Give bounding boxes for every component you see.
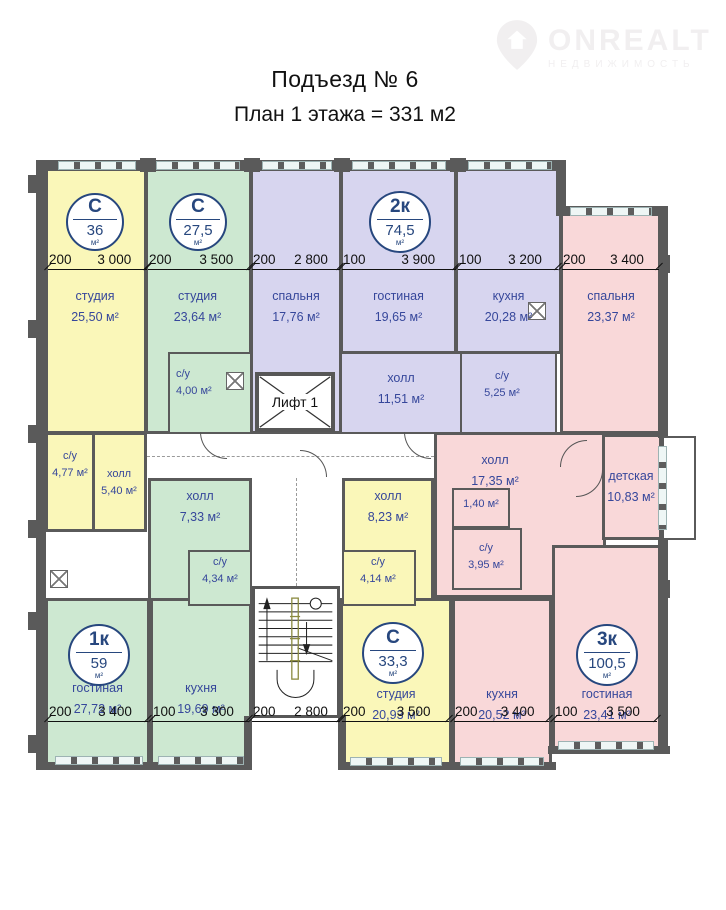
dim-top-6: 2003 400: [562, 252, 659, 270]
pilaster: [28, 175, 38, 193]
brand-name: ONREALT: [548, 26, 712, 56]
pilaster: [140, 158, 156, 172]
pilaster: [28, 612, 38, 630]
dim-bottom-2: 1003 300: [152, 704, 249, 722]
dim-top-5: 1003 200: [458, 252, 558, 270]
room-label-hall-purple: холл11,51 м²: [345, 368, 457, 409]
pilaster: [28, 425, 38, 443]
pilaster: [450, 158, 466, 172]
room-label-bathroom-pink: с/у3,95 м²: [446, 540, 526, 573]
window-band: [158, 756, 244, 765]
brand-tagline: НЕДВИЖИМОСТЬ: [548, 59, 712, 70]
pilaster: [28, 520, 38, 538]
apartment-badge-c-27-5: C 27,5 м²: [169, 193, 227, 251]
dim-bottom-3: 2002 800: [252, 704, 340, 722]
room-label-hall-pink: холл17,35 м²: [440, 450, 550, 491]
window-band: [352, 161, 446, 170]
room-label-storage-pink: 1,40 м²: [450, 496, 512, 513]
dim-top-4: 1003 900: [342, 252, 456, 270]
dim-bottom-6: 1003 500: [554, 704, 657, 722]
pilaster: [244, 158, 260, 172]
dim-top-3: 2002 800: [252, 252, 340, 270]
room-kitchen-pink: [452, 598, 552, 765]
room-label-studio-top-green: студия23,64 м²: [145, 286, 250, 327]
dim-top-2: 2003 500: [148, 252, 250, 270]
room-label-bathroom-green-top: с/у4,00 м²: [170, 366, 240, 399]
room-label-hall-yellow: холл8,23 м²: [342, 486, 434, 527]
apartment-badge-1k-59: 1к 59 м²: [68, 624, 130, 686]
pilaster: [660, 580, 670, 598]
stairs: [252, 586, 340, 718]
dim-bottom-1: 2003 400: [48, 704, 148, 722]
apartment-badge-3k-100-5: 3к 100,5 м²: [576, 624, 638, 686]
window-band: [58, 161, 136, 170]
door-arc-icon: [200, 432, 227, 459]
door-arc-icon: [404, 432, 431, 459]
dim-bottom-5: 2003 400: [454, 704, 549, 722]
pilaster: [28, 735, 38, 753]
dim-bottom-4: 2003 500: [342, 704, 449, 722]
page-subtitle: План 1 этажа = 331 м2: [0, 103, 690, 127]
room-label-hall-green: холл7,33 м²: [150, 486, 250, 527]
window-band: [156, 161, 240, 170]
door-arc-icon: [300, 450, 327, 477]
window-band: [558, 741, 654, 750]
room-label-bathroom-yellow-mid: с/у4,77 м²: [45, 448, 95, 481]
room-label-hall-yellow-mid: холл5,40 м²: [90, 466, 148, 499]
window-band: [55, 756, 143, 765]
axis-line: [296, 478, 297, 586]
location-pin-house-icon: [494, 18, 540, 77]
balcony-right: [662, 436, 696, 540]
apartment-badge-c-33-3: C 33,3 м²: [362, 622, 424, 684]
apartment-badge-c-36: C 36 м²: [66, 193, 124, 251]
room-label-studio-top-left: студия25,50 м²: [45, 286, 145, 327]
room-label-living-purple: гостиная19,65 м²: [340, 286, 457, 327]
room-label-bedroom-pink: спальня23,37 м²: [560, 286, 662, 327]
vent-shaft-icon: [50, 570, 68, 588]
axis-line: [147, 456, 434, 457]
room-label-kitchen-purple: кухня20,28 м²: [455, 286, 562, 327]
room-label-bedroom-purple: спальня17,76 м²: [250, 286, 342, 327]
window-band: [350, 757, 442, 766]
apartment-badge-2k-74-5: 2к 74,5 м²: [369, 191, 431, 253]
room-label-bathroom-green-bottom: с/у4,34 м²: [188, 554, 252, 587]
pilaster: [334, 158, 350, 172]
elevator-label: Лифт 1: [268, 394, 322, 410]
window-band: [460, 757, 544, 766]
brand-logo: ONREALT НЕДВИЖИМОСТЬ: [494, 18, 712, 77]
window-band: [570, 207, 652, 216]
room-label-nursery-pink: детская10,83 м²: [596, 466, 666, 507]
elevator: Лифт 1: [255, 372, 335, 432]
room-label-bathroom-purple: с/у5,25 м²: [462, 368, 542, 401]
room-label-bathroom-yellow: с/у4,14 м²: [336, 554, 420, 587]
window-band: [468, 161, 552, 170]
pilaster: [28, 320, 38, 338]
floor-plan-page: { "header": { "title": "Подъезд № 6", "s…: [0, 0, 726, 910]
dim-top-1: 2003 000: [48, 252, 147, 270]
window-band: [262, 161, 332, 170]
